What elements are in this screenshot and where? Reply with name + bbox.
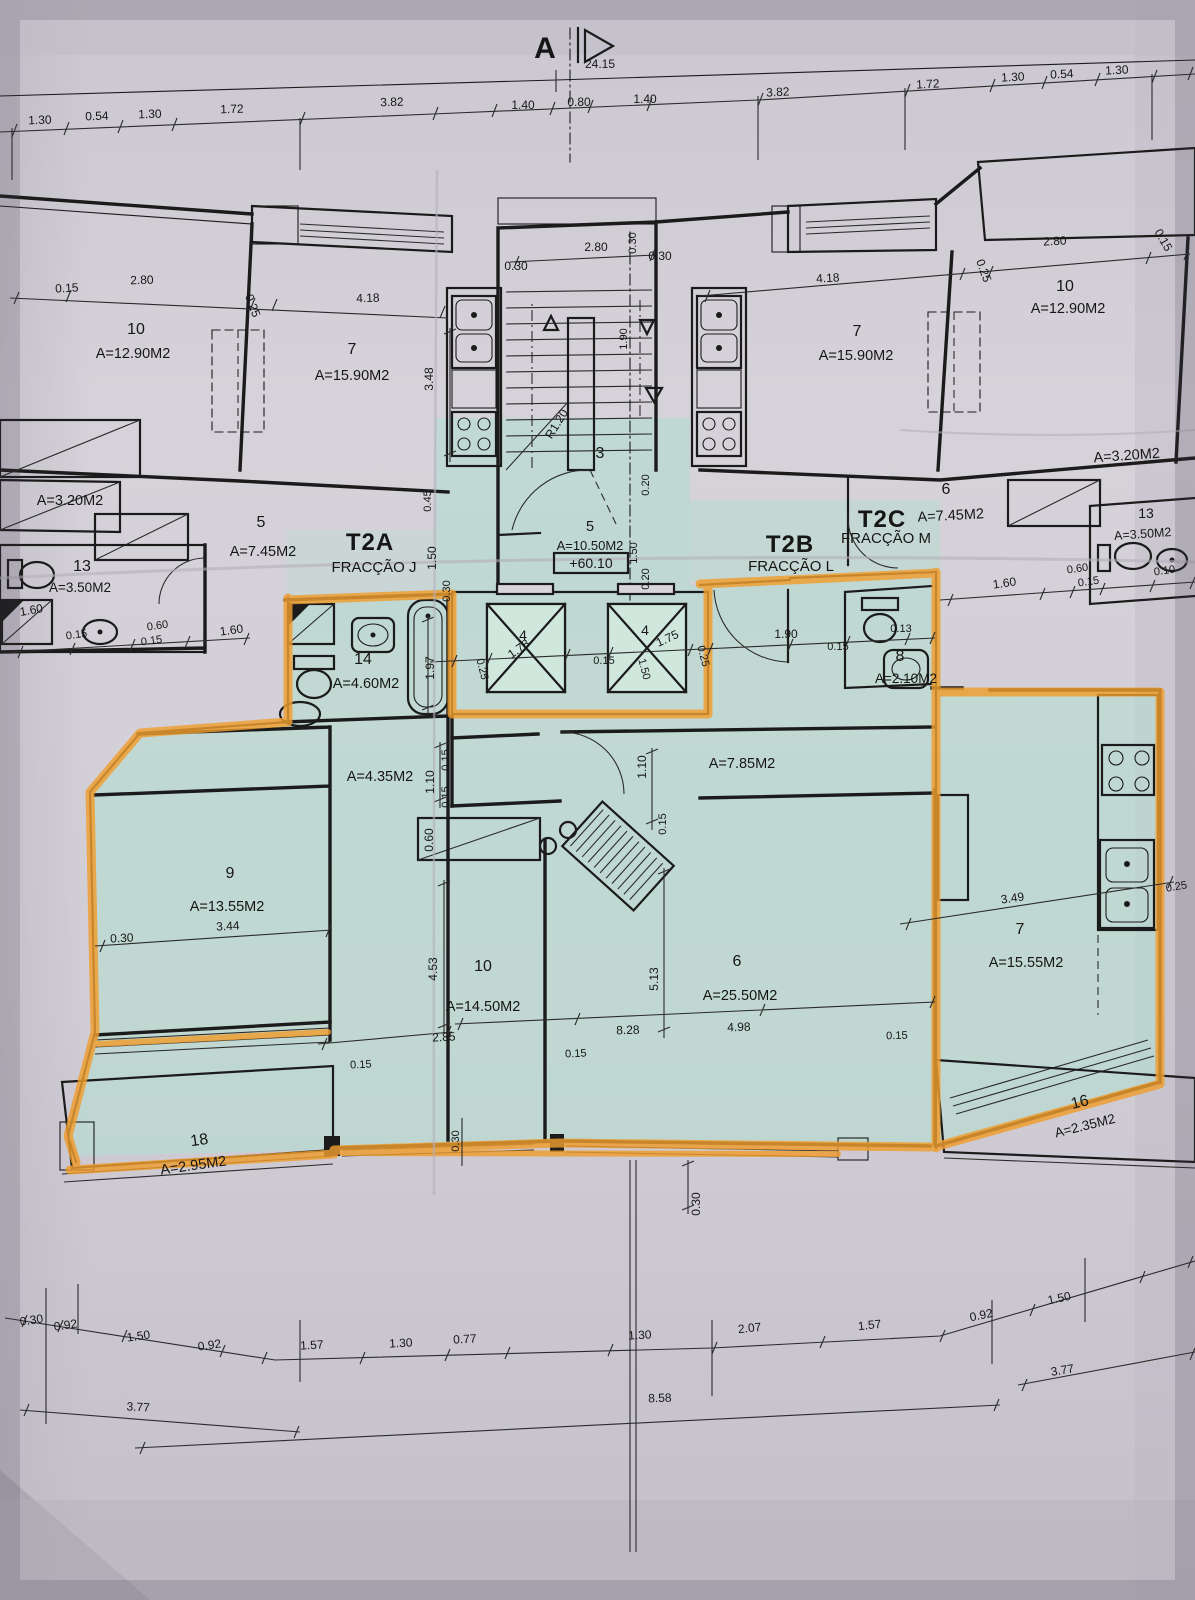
dim: 1.72 — [220, 102, 244, 117]
dim: 1.72 — [916, 76, 940, 91]
dim: 1.97 — [423, 656, 437, 680]
room-label: 9 — [226, 865, 235, 882]
dim: 3.48 — [422, 367, 436, 391]
overall-dim-label: 24.15 — [585, 57, 615, 71]
room-label: 14 — [354, 651, 372, 668]
dim: 1.30 — [28, 113, 52, 128]
dim: 0.20 — [640, 474, 652, 495]
room-label: 10 — [127, 321, 145, 338]
fraction-t2b-name: FRACÇÃO L — [748, 558, 834, 575]
room-label: 6 — [942, 481, 951, 498]
section-marker-label: A — [534, 32, 556, 65]
dim: 4.18 — [356, 291, 380, 306]
fraction-t2a-name: FRACÇÃO J — [331, 559, 416, 576]
dim: 0.30 — [110, 930, 134, 945]
dim: 0.30 — [504, 259, 528, 273]
dim: 0.45 — [422, 490, 434, 511]
dim: 0.30 — [450, 1130, 462, 1151]
dim: 0.15 — [827, 641, 848, 653]
dim: 1.30 — [1001, 69, 1025, 84]
room-area: A=25.50M2 — [703, 988, 778, 1004]
dim: 0.15 — [440, 749, 452, 770]
dim: 0.15 — [593, 655, 614, 667]
elevation-label: +60.10 — [569, 555, 612, 571]
floor-plan-photo: A 24.15 +60.10 T2A FRACÇÃO J T2B FRACÇÃO… — [0, 0, 1195, 1600]
dim: 1.50 — [628, 542, 640, 563]
dim: 1.90 — [618, 328, 630, 349]
dim: 0.30 — [648, 249, 672, 263]
dim: 0.15 — [350, 1058, 372, 1071]
room-label: 5 — [586, 519, 594, 535]
room-label: 5 — [257, 514, 266, 531]
dim: 3.82 — [380, 95, 404, 110]
dim: 2.80 — [1043, 233, 1067, 248]
dim: 1.57 — [300, 1337, 324, 1352]
floor-plan-svg: A 24.15 +60.10 T2A FRACÇÃO J T2B FRACÇÃO… — [0, 0, 1195, 1600]
dim: 0.15 — [565, 1047, 587, 1060]
dim: 1.50 — [425, 546, 439, 570]
dim: 1.30 — [389, 1335, 413, 1350]
fraction-t2c-code: T2C — [858, 506, 906, 533]
dim: 1.10 — [635, 755, 649, 779]
room-area: A=3.20M2 — [37, 493, 104, 509]
room-area: A=3.50M2 — [49, 580, 111, 595]
dim: 2.80 — [584, 240, 608, 254]
room-area: A=7.85M2 — [709, 756, 776, 772]
dim: 1.30 — [628, 1327, 652, 1342]
room-area: A=7.45M2 — [230, 544, 297, 560]
dim: 1.90 — [774, 627, 798, 641]
dim: 2.07 — [737, 1320, 762, 1336]
room-area: A=12.90M2 — [96, 346, 171, 362]
dim: 0.30 — [627, 232, 639, 253]
dim: 1.57 — [857, 1317, 882, 1333]
dim: 0.54 — [1050, 66, 1074, 81]
room-label: 10 — [474, 958, 492, 975]
dim: 0.80 — [567, 95, 591, 109]
room-label: 7 — [348, 341, 357, 358]
dim: 5.13 — [647, 967, 661, 991]
dim: 1.30 — [1105, 62, 1129, 77]
dim: 3.82 — [766, 84, 790, 99]
room-area: A=2.10M2 — [875, 671, 937, 686]
dim: 0.15 — [440, 786, 452, 807]
room-area: A=4.35M2 — [347, 769, 414, 785]
dim: 2.85 — [432, 1029, 456, 1044]
dim: 1.10 — [423, 770, 437, 794]
lift-label: 4 — [641, 622, 649, 638]
room-label: 13 — [1138, 505, 1154, 521]
room-area: A=15.55M2 — [989, 955, 1064, 971]
room-area: A=15.90M2 — [819, 348, 894, 364]
dim: 0.15 — [657, 813, 669, 834]
fraction-t2a-code: T2A — [346, 529, 394, 556]
dim: 1.30 — [138, 107, 162, 122]
dim: 0.77 — [453, 1331, 477, 1346]
dim: 3.44 — [216, 918, 240, 933]
room-label: 7 — [853, 323, 862, 340]
room-label: 13 — [73, 558, 91, 575]
dim: 0.15 — [886, 1030, 908, 1043]
dim: 0.30 — [441, 580, 453, 601]
dim: 0.13 — [890, 623, 911, 635]
dim: 4.18 — [816, 270, 840, 285]
dim: 0.20 — [640, 568, 652, 589]
room-label: 18 — [189, 1131, 209, 1150]
dim: 0.60 — [422, 828, 436, 852]
room-area: A=15.90M2 — [315, 368, 390, 384]
room-area: A=4.60M2 — [333, 676, 400, 692]
dim: 0.54 — [85, 109, 109, 124]
room-label: 8 — [896, 648, 905, 665]
dim: 4.53 — [426, 957, 440, 981]
room-area: A=14.50M2 — [446, 999, 521, 1015]
room-area: A=13.55M2 — [190, 899, 265, 915]
fraction-t2c-name: FRACÇÃO M — [841, 530, 931, 547]
dim: 8.58 — [648, 1391, 672, 1406]
dim: 1.40 — [511, 98, 535, 112]
room-area: A=12.90M2 — [1031, 301, 1106, 317]
dim: 2.80 — [130, 273, 154, 288]
room-area: A=10.50M2 — [557, 538, 624, 553]
room-label: 7 — [1016, 921, 1025, 938]
room-label: 6 — [733, 953, 742, 970]
dim: 8.28 — [616, 1023, 640, 1038]
dim: 0.15 — [55, 280, 79, 295]
dim: 3.77 — [126, 1399, 150, 1414]
fraction-t2b-code: T2B — [766, 531, 814, 558]
room-label: 3 — [596, 445, 605, 462]
dim: 0.30 — [689, 1192, 703, 1216]
room-label: 10 — [1056, 278, 1074, 295]
dim: 1.40 — [633, 92, 657, 106]
dim: 4.98 — [727, 1020, 751, 1035]
